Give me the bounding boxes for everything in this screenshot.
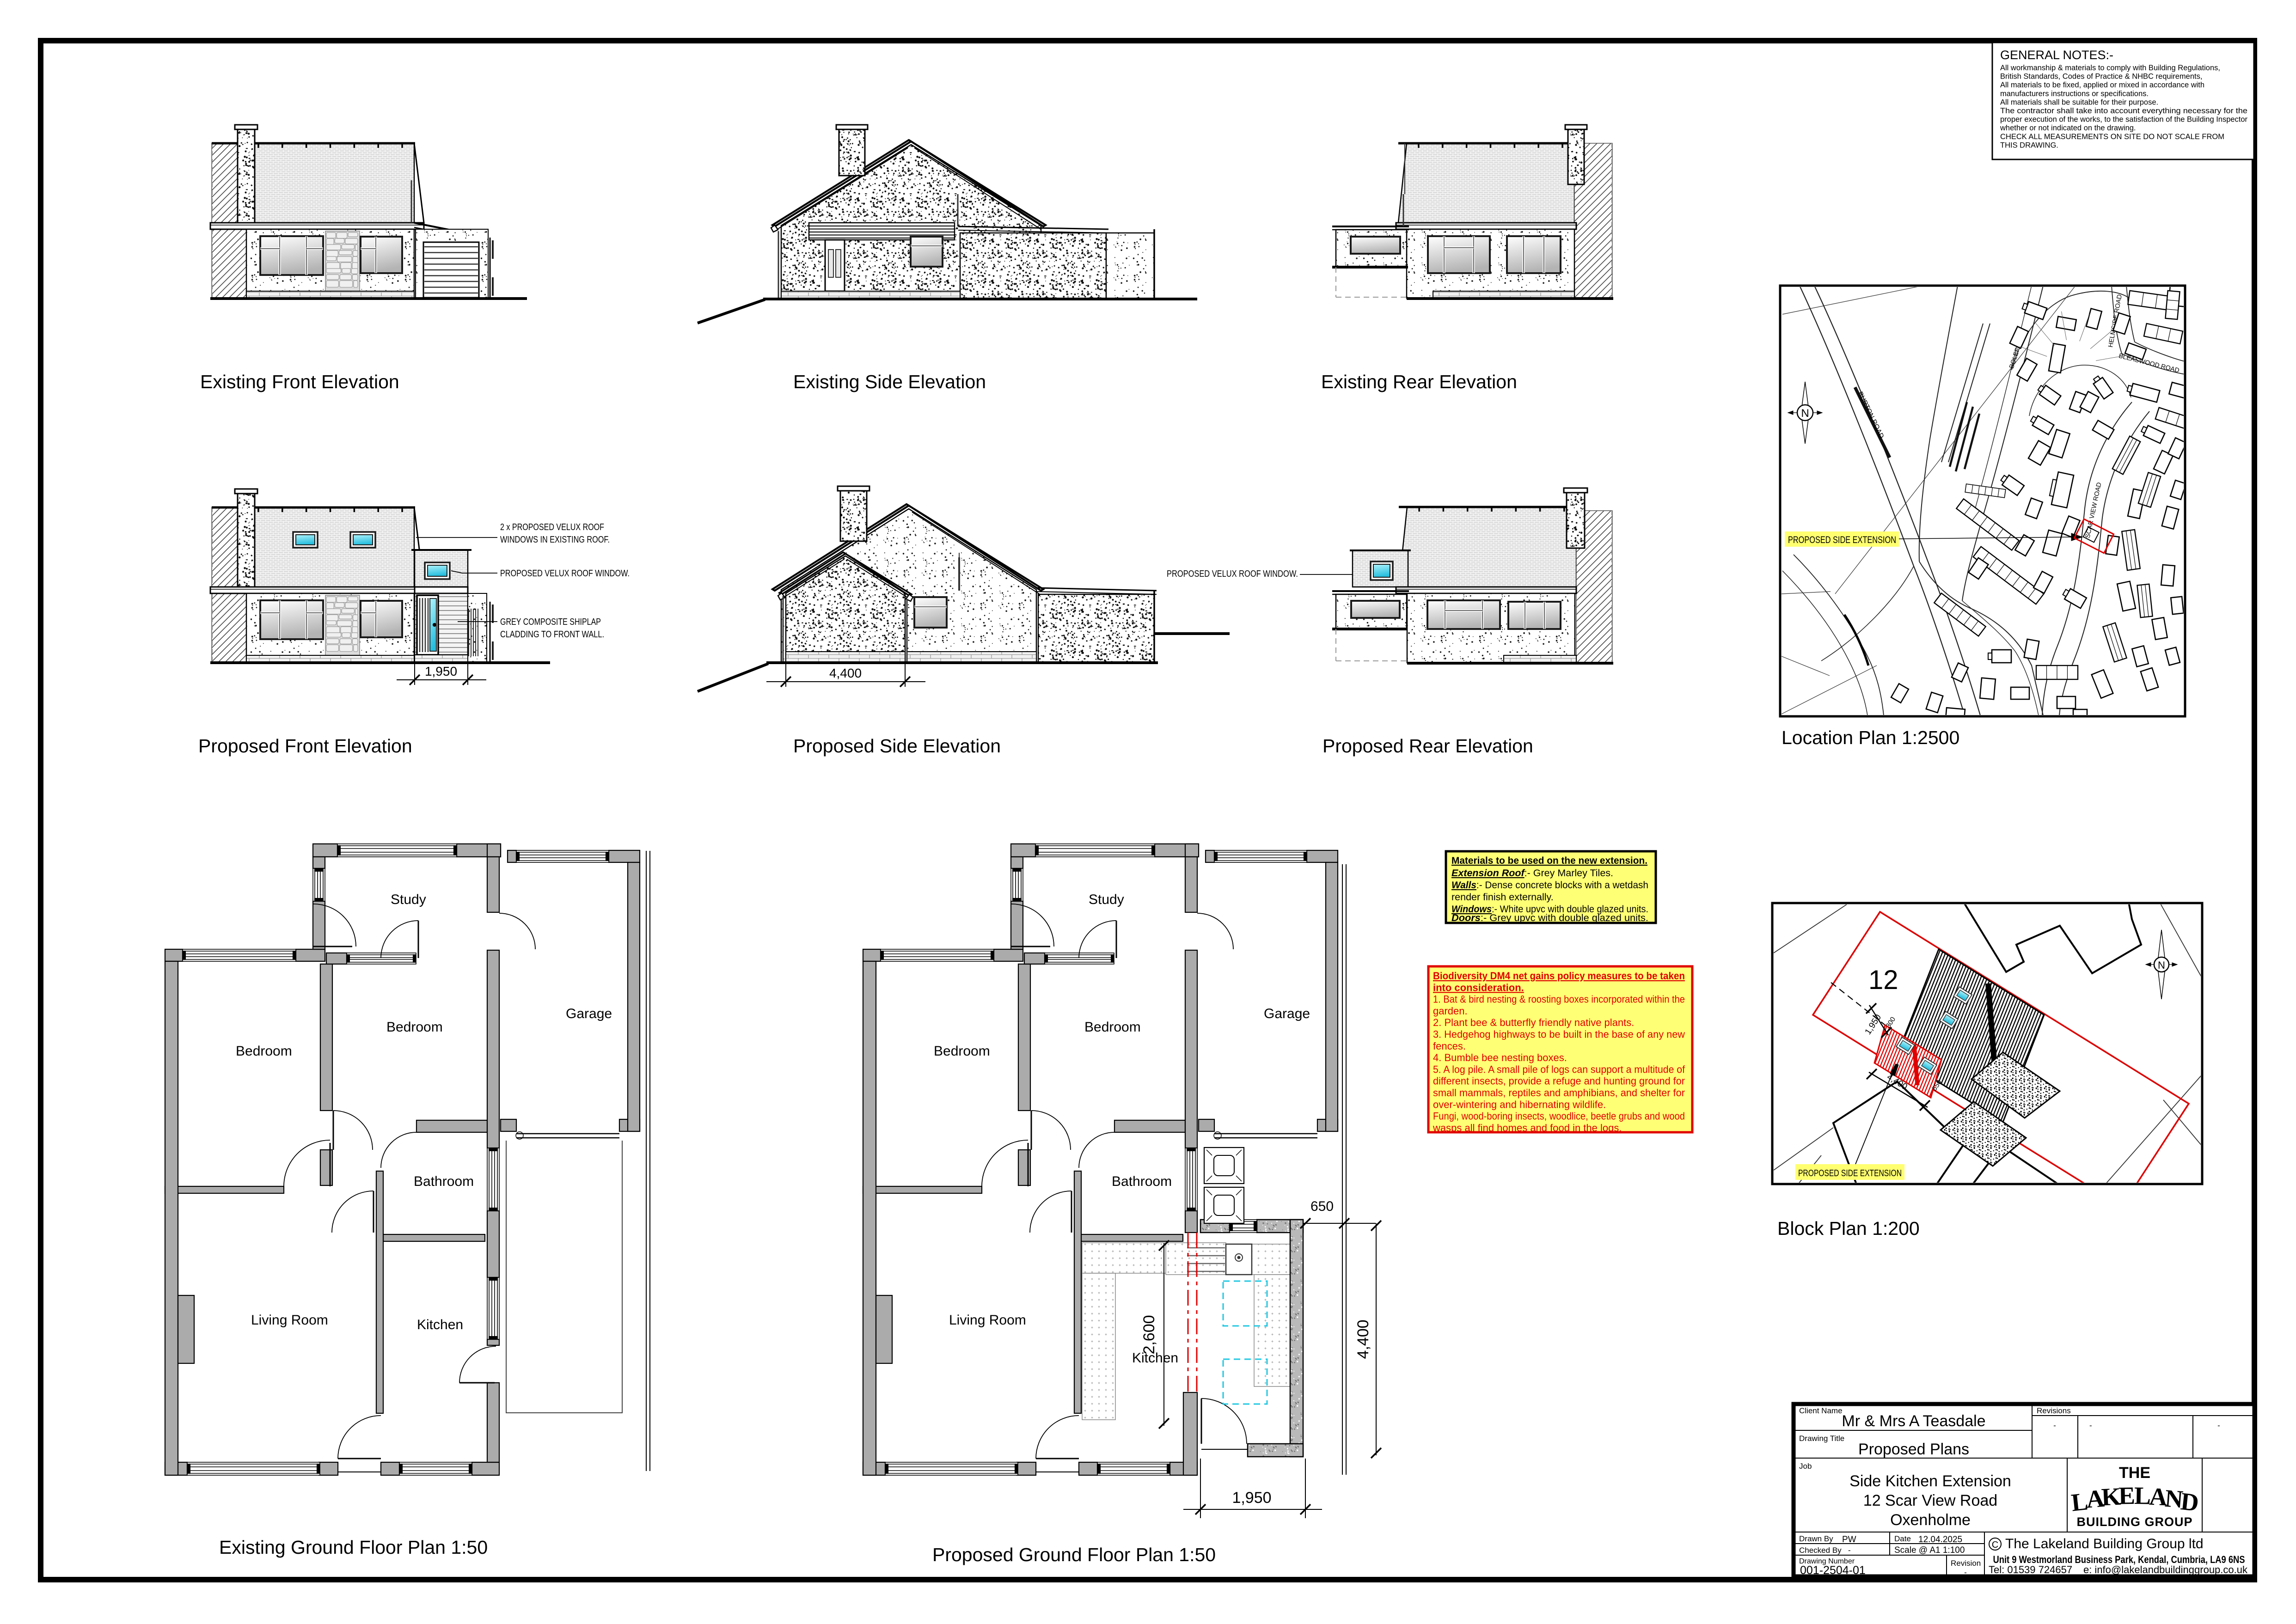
svg-text:PROPOSED VELUX ROOF WINDOW.: PROPOSED VELUX ROOF WINDOW. [500,568,630,579]
svg-text:-: - [1964,1568,1967,1577]
svg-text:garden.: garden. [1433,1005,1468,1017]
svg-text:12 Scar View Road: 12 Scar View Road [1863,1492,1997,1509]
svg-text:CHECK ALL MEASUREMENTS ON SITE: CHECK ALL MEASUREMENTS ON SITE DO NOT SC… [2000,133,2224,141]
svg-text:Job: Job [1799,1462,1812,1471]
svg-text:Biodiversity DM4 net gains pol: Biodiversity DM4 net gains policy measur… [1433,970,1685,982]
svg-text:Study: Study [391,892,426,907]
svg-text:Revision: Revision [1951,1559,1981,1568]
svg-text:Drawing Title: Drawing Title [1799,1434,1844,1443]
svg-text:All materials to be fixed, app: All materials to be fixed, applied or mi… [2000,81,2204,89]
svg-text:650: 650 [1310,1199,1334,1214]
svg-text:Proposed Front Elevation: Proposed Front Elevation [198,735,412,757]
svg-text:-: - [2217,1421,2220,1430]
svg-text:Bedroom: Bedroom [934,1044,990,1059]
svg-text:Date: Date [1894,1534,1911,1543]
svg-text:Existing Rear Elevation: Existing Rear Elevation [1321,371,1517,392]
svg-text:PROPOSED SIDE EXTENSION: PROPOSED SIDE EXTENSION [1798,1168,1902,1178]
svg-text:Existing Ground Floor Plan 1:5: Existing Ground Floor Plan 1:50 [219,1537,488,1558]
svg-text:render finish externally.: render finish externally. [1451,891,1554,903]
svg-text:1,950: 1,950 [425,664,457,678]
svg-text:Garage: Garage [566,1006,612,1021]
svg-text:-: - [1848,1546,1851,1555]
svg-text:The Lakeland Building Group lt: The Lakeland Building Group ltd [2005,1536,2204,1551]
svg-text:All materials shall be suitabl: All materials shall be suitable for thei… [2000,98,2158,106]
svg-text:Oxenholme: Oxenholme [1890,1511,1971,1529]
svg-text:Location Plan 1:2500: Location Plan 1:2500 [1782,727,1959,748]
svg-text:Bedroom: Bedroom [1084,1020,1141,1035]
svg-text:C: C [1992,1540,1998,1550]
svg-text:into consideration.: into consideration. [1433,982,1524,993]
svg-text:small mammals, reptiles and am: small mammals, reptiles and amphibians, … [1433,1087,1685,1099]
svg-text:Walls:- Dense concrete blocks: Walls:- Dense concrete blocks with a wet… [1451,879,1648,891]
svg-text:2,600: 2,600 [1140,1315,1158,1354]
svg-text:-: - [2089,1421,2092,1430]
svg-text:Scale @ A1 1:100: Scale @ A1 1:100 [1894,1545,1965,1555]
svg-text:12.04.2025: 12.04.2025 [1918,1535,1962,1545]
svg-text:Block Plan 1:200: Block Plan 1:200 [1777,1218,1920,1239]
svg-text:Garage: Garage [1264,1006,1310,1021]
svg-text:All workmanship & materials to: All workmanship & materials to comply wi… [2000,64,2220,72]
svg-text:proper execution of the works,: proper execution of the works, to the sa… [2000,116,2248,124]
svg-text:Kitchen: Kitchen [1132,1350,1178,1366]
svg-text:GENERAL NOTES:-: GENERAL NOTES:- [2000,48,2113,62]
svg-text:PROPOSED SIDE EXTENSION: PROPOSED SIDE EXTENSION [1788,535,1896,545]
svg-text:Existing Front Elevation: Existing Front Elevation [200,371,399,392]
svg-text:2 x PROPOSED VELUX ROOF: 2 x PROPOSED VELUX ROOF [500,522,604,532]
svg-text:E: E [2118,1482,2136,1510]
svg-text:Doors:- Grey upvc with double: Doors:- Grey upvc with double glazed uni… [1451,912,1648,923]
svg-text:Living Room: Living Room [949,1313,1026,1328]
svg-text:3. Hedgehog highways to be bui: 3. Hedgehog highways to be built in the … [1433,1029,1685,1040]
svg-text:D: D [2180,1487,2200,1517]
svg-text:THIS DRAWING.: THIS DRAWING. [2000,141,2058,149]
svg-text:British Standards, Codes of Pr: British Standards, Codes of Practice & N… [2000,73,2202,81]
svg-text:Bathroom: Bathroom [414,1174,474,1189]
svg-text:Extension Roof:- Grey Marley T: Extension Roof:- Grey Marley Tiles. [1451,867,1613,879]
svg-text:Proposed Side Elevation: Proposed Side Elevation [793,735,1001,757]
svg-text:Proposed Plans: Proposed Plans [1858,1441,1969,1458]
svg-text:4,400: 4,400 [1354,1319,1372,1359]
svg-text:Revisions: Revisions [2037,1406,2071,1415]
svg-text:THE: THE [2119,1464,2150,1482]
svg-text:CLADDING TO FRONT WALL.: CLADDING TO FRONT WALL. [500,629,604,640]
svg-text:Study: Study [1089,892,1124,907]
svg-text:e: info@lakelandbuildinggroup.: e: info@lakelandbuildinggroup.co.uk [2083,1564,2248,1575]
svg-text:Kitchen: Kitchen [417,1317,463,1332]
svg-text:Drawn By: Drawn By [1799,1534,1833,1543]
svg-text:Mr & Mrs A Teasdale: Mr & Mrs A Teasdale [1842,1412,1985,1430]
svg-text:over-wintering and hibernating: over-wintering and hibernating wildlife. [1433,1099,1606,1110]
svg-text:001-2504-01: 001-2504-01 [1800,1564,1866,1577]
svg-text:Bedroom: Bedroom [236,1044,292,1059]
svg-text:Fungi, wood-boring insects, wo: Fungi, wood-boring insects, woodlice, be… [1433,1111,1685,1122]
svg-text:4,400: 4,400 [829,666,862,680]
svg-text:Checked By: Checked By [1799,1546,1842,1555]
svg-text:-: - [2053,1421,2056,1430]
svg-text:4. Bumble bee nesting boxes.: 4. Bumble bee nesting boxes. [1433,1052,1567,1063]
svg-text:Bedroom: Bedroom [386,1020,443,1035]
svg-text:1,950: 1,950 [1232,1489,1271,1507]
svg-text:Side Kitchen Extension: Side Kitchen Extension [1849,1472,2011,1490]
svg-text:PROPOSED VELUX ROOF WINDOW.: PROPOSED VELUX ROOF WINDOW. [1167,569,1298,579]
svg-text:Existing Side Elevation: Existing Side Elevation [793,371,986,392]
svg-text:wasps all find homes and food: wasps all find homes and food in the log… [1433,1122,1622,1134]
svg-text:Proposed Ground Floor Plan 1:5: Proposed Ground Floor Plan 1:50 [932,1544,1216,1565]
svg-text:PW: PW [1842,1535,1856,1545]
svg-text:Materials to be used on the ne: Materials to be used on the new extensio… [1451,855,1647,866]
svg-text:N: N [1801,407,1809,420]
svg-text:Living Room: Living Room [251,1313,328,1328]
svg-text:WINDOWS IN EXISTING ROOF.: WINDOWS IN EXISTING ROOF. [500,535,610,545]
svg-text:The contractor shall take into: The contractor shall take into account e… [2000,107,2247,115]
svg-text:Proposed Rear Elevation: Proposed Rear Elevation [1322,735,1533,757]
svg-text:different insects, provide a r: different insects, provide a refuge and … [1433,1075,1685,1087]
svg-text:whether or not indicated on th: whether or not indicated on the drawing. [2000,124,2136,132]
svg-text:fences.: fences. [1433,1040,1466,1052]
svg-text:Tel: 01539 724657: Tel: 01539 724657 [1989,1564,2072,1575]
svg-text:manufacturers instructions or: manufacturers instructions or specificat… [2000,90,2149,98]
svg-text:1. Bat & bird nesting & roosti: 1. Bat & bird nesting & roosting boxes i… [1433,994,1685,1005]
svg-text:N: N [2158,959,2165,971]
svg-text:Client Name: Client Name [1799,1406,1843,1415]
svg-text:5. A log pile. A small pile of: 5. A log pile. A small pile of logs can … [1433,1063,1685,1075]
svg-text:2. Plant bee & butterfly frien: 2. Plant bee & butterfly friendly native… [1433,1017,1634,1028]
svg-text:Bathroom: Bathroom [1112,1174,1172,1189]
svg-text:BUILDING GROUP: BUILDING GROUP [2076,1515,2192,1529]
svg-text:12: 12 [1868,965,1898,995]
svg-text:GREY COMPOSITE SHIPLAP: GREY COMPOSITE SHIPLAP [500,617,601,627]
